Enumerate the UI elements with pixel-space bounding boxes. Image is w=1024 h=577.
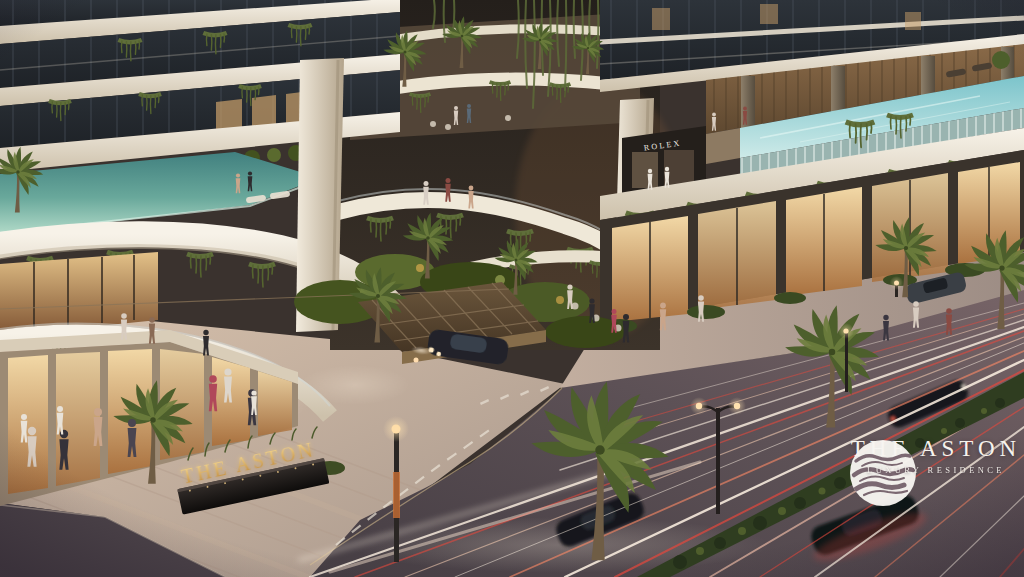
scene-svg: ROLEX — [0, 0, 1024, 577]
scene-root: ROLEX — [0, 0, 1024, 577]
vignette-overlay — [0, 0, 1024, 577]
